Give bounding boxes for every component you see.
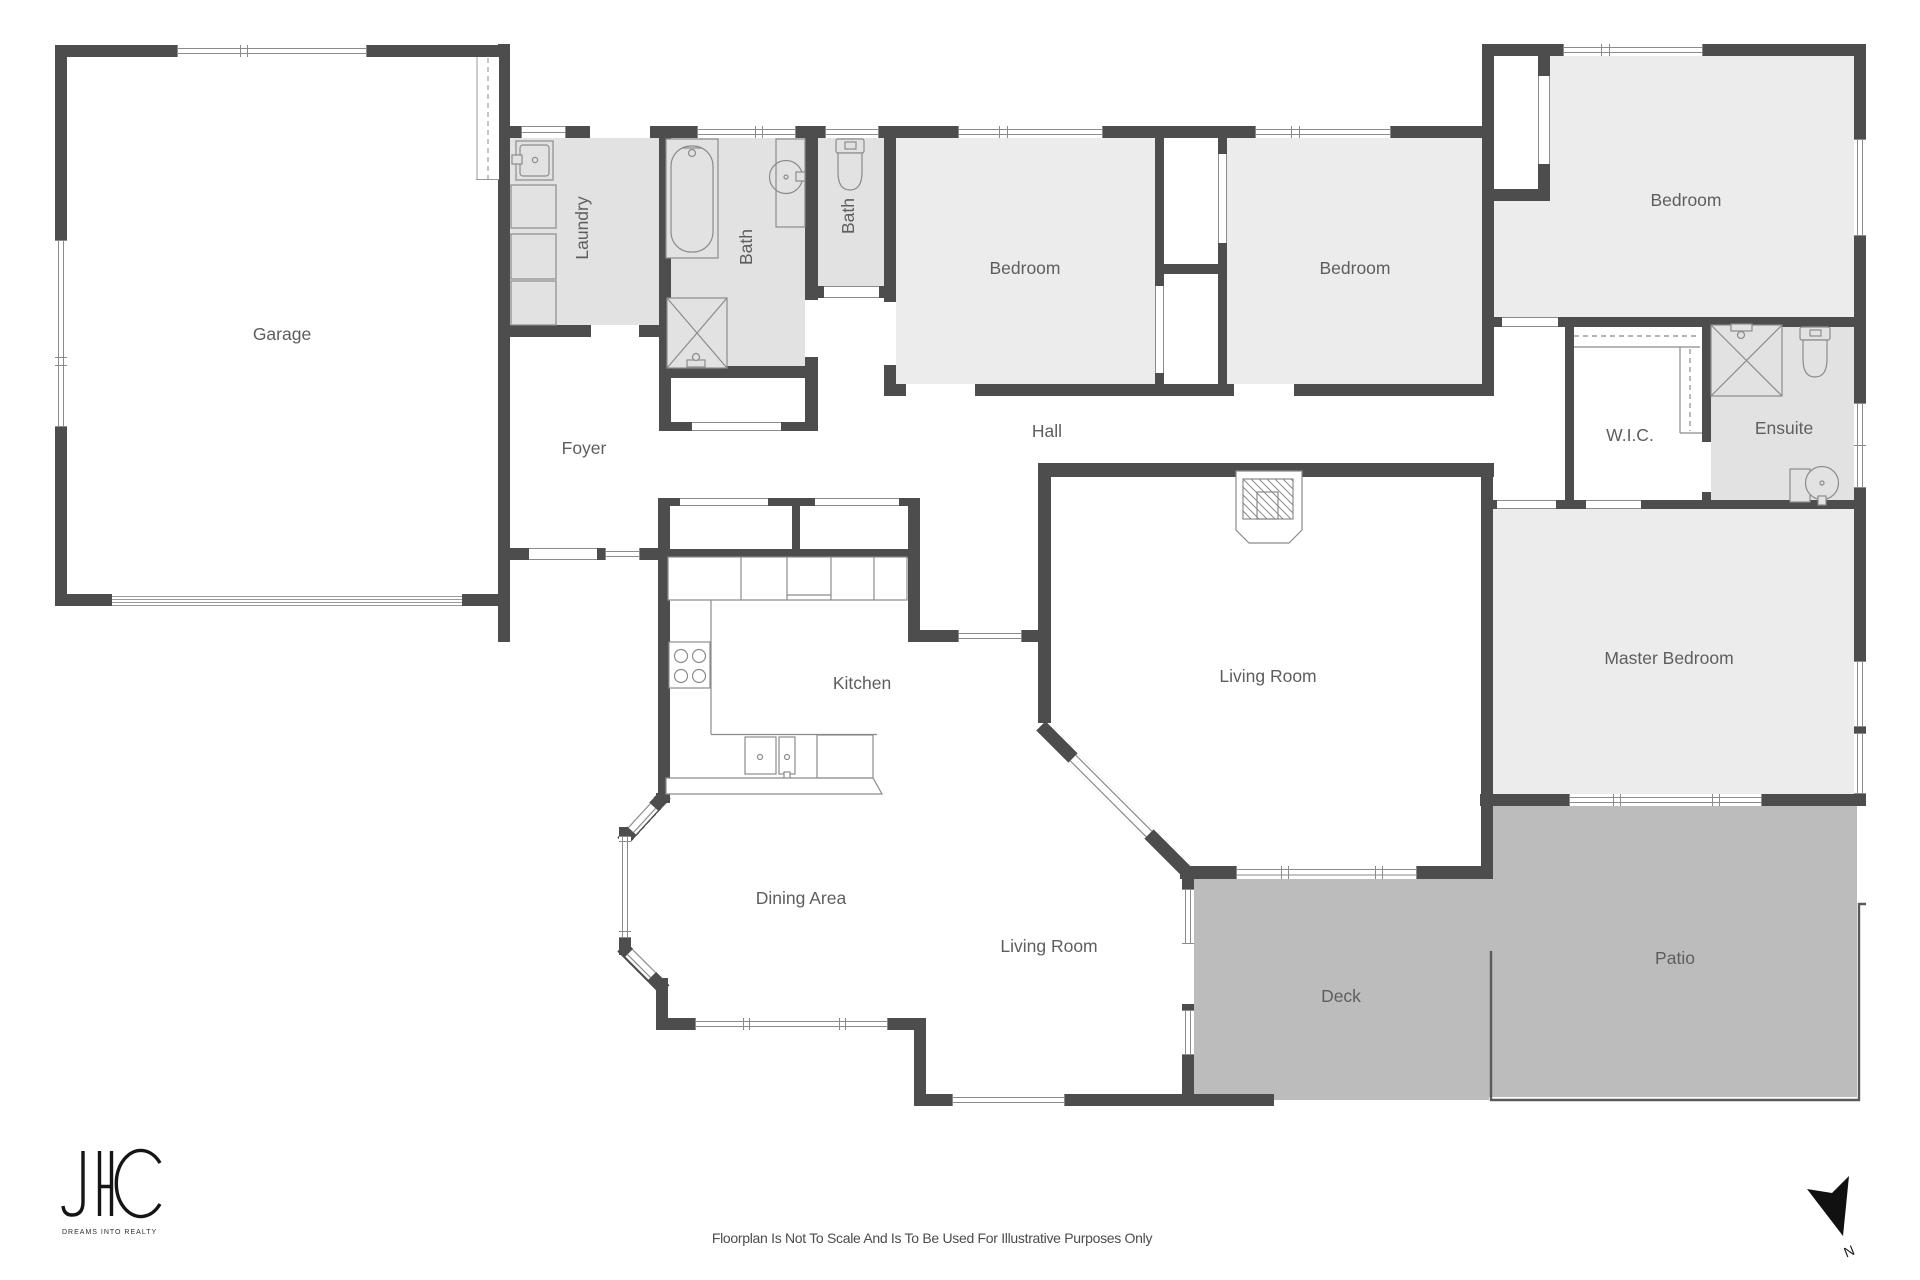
svg-text:W.I.C.: W.I.C. bbox=[1606, 425, 1654, 445]
svg-text:Kitchen: Kitchen bbox=[833, 673, 891, 693]
svg-text:Living Room: Living Room bbox=[1219, 666, 1316, 686]
svg-text:DREAMS INTO REALTY: DREAMS INTO REALTY bbox=[62, 1229, 157, 1236]
svg-text:Laundry: Laundry bbox=[572, 196, 592, 259]
svg-text:Foyer: Foyer bbox=[562, 438, 607, 458]
svg-text:Bedroom: Bedroom bbox=[1650, 190, 1721, 210]
svg-text:Bedroom: Bedroom bbox=[1319, 258, 1390, 278]
svg-text:Deck: Deck bbox=[1321, 986, 1361, 1006]
svg-text:Garage: Garage bbox=[253, 324, 311, 344]
svg-text:Ensuite: Ensuite bbox=[1755, 418, 1813, 438]
svg-text:Bath: Bath bbox=[838, 198, 858, 234]
svg-text:Master Bedroom: Master Bedroom bbox=[1604, 648, 1733, 668]
svg-text:Bath: Bath bbox=[736, 229, 756, 265]
svg-text:Living Room: Living Room bbox=[1000, 936, 1097, 956]
svg-text:Hall: Hall bbox=[1032, 421, 1062, 441]
svg-text:Bedroom: Bedroom bbox=[989, 258, 1060, 278]
svg-text:Dining Area: Dining Area bbox=[756, 888, 847, 908]
svg-text:Floorplan Is Not To Scale And: Floorplan Is Not To Scale And Is To Be U… bbox=[712, 1230, 1153, 1246]
svg-text:Patio: Patio bbox=[1655, 948, 1695, 968]
